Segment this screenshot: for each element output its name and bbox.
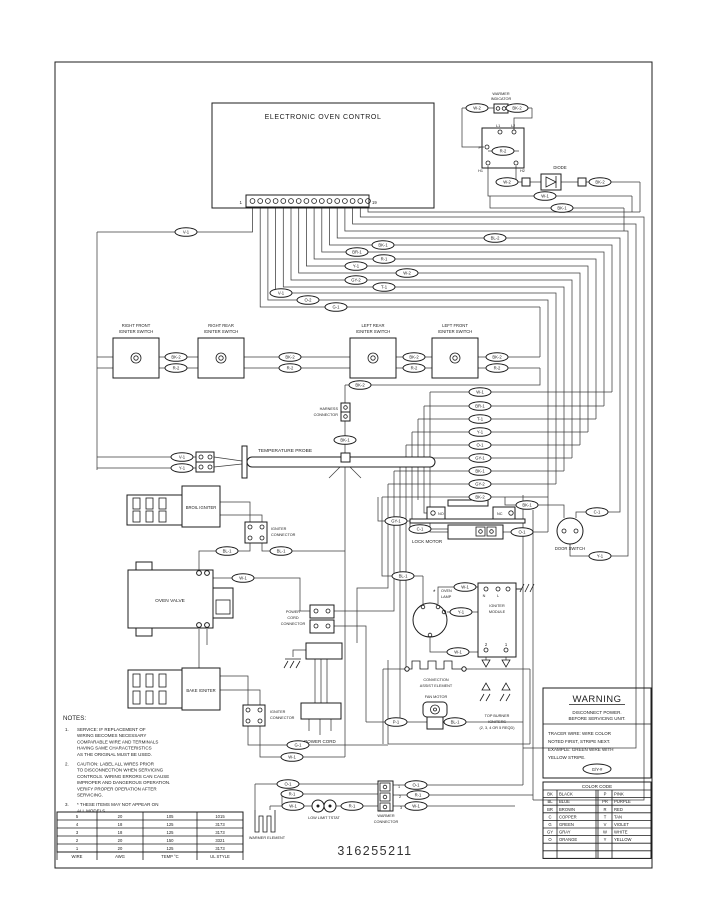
- svg-text:ASSIST ELEMENT: ASSIST ELEMENT: [420, 684, 453, 688]
- color-code-name: BLACK: [559, 792, 573, 797]
- wire-label-text: O-2: [305, 298, 313, 303]
- color-code-abbr: W: [603, 830, 607, 835]
- wire-label-text: BK-2: [285, 355, 295, 360]
- table-cell: 18: [118, 830, 123, 835]
- wire-label-text: BK-2: [355, 383, 365, 388]
- relay-p: P: [478, 146, 481, 150]
- svg-text:IGNITER SWITCH: IGNITER SWITCH: [438, 329, 473, 334]
- wire-label-text: BK-2: [492, 355, 502, 360]
- table-cell: 150: [167, 838, 175, 843]
- warning-title: WARNING: [572, 694, 621, 705]
- svg-text:NOTED FIRST, STRIPE NEXT.: NOTED FIRST, STRIPE NEXT.: [548, 739, 610, 744]
- wire-label-text: G-1: [333, 305, 341, 310]
- table-header-cell: WIRE: [72, 854, 83, 859]
- temperature-probe-label: TEMPERATURE PROBE: [258, 448, 312, 454]
- wire-label-text: W-1: [412, 804, 420, 809]
- svg-text:MODULE: MODULE: [489, 610, 506, 614]
- wire: [306, 207, 588, 432]
- color-code-name: YELLOW: [614, 837, 632, 842]
- wire-label-text: GY-2: [351, 278, 361, 283]
- svg-text:CORD: CORD: [287, 616, 298, 620]
- warmer-element-label: WARMER ELEMENT: [249, 836, 286, 840]
- wire: [276, 207, 556, 484]
- wire-label-text: GY-1: [391, 519, 401, 524]
- wire-label-text: P-1: [393, 720, 400, 725]
- wire-label-text: W-2: [403, 271, 411, 276]
- note-number: 3.: [65, 802, 69, 807]
- color-code-abbr: BK: [547, 792, 553, 797]
- note-line: SERVICING.: [77, 793, 103, 798]
- wire-label-text: BL-2: [491, 236, 501, 241]
- wire-label-text: W-1: [288, 755, 296, 760]
- tracer-line: TRACER WIRE: WIRE COLOR: [548, 731, 612, 736]
- table-cell: 125: [167, 822, 175, 827]
- color-code-abbr: G: [548, 822, 551, 827]
- note-line: VERIFY PROPER OPERATION AFTER: [77, 786, 157, 791]
- wire-label-text: Y-1: [458, 610, 465, 615]
- warmer-pin-2: 2: [399, 795, 401, 799]
- svg-text:CONNECTOR: CONNECTOR: [271, 533, 296, 537]
- color-code-abbr: PR: [602, 799, 608, 804]
- wire-label-text: W-2: [503, 180, 511, 185]
- wire-label-text: R-2: [494, 366, 501, 371]
- svg-text:IGNITER SWITCH: IGNITER SWITCH: [356, 329, 391, 334]
- svg-text:INDICATOR: INDICATOR: [491, 97, 512, 101]
- svg-text:(2, 3, 4 OR 5 REQD): (2, 3, 4 OR 5 REQD): [479, 726, 515, 730]
- svg-text:CONNECTOR: CONNECTOR: [281, 622, 306, 626]
- relay-l1: L1: [496, 124, 500, 128]
- igniter-switch-label: RIGHT FRONT: [122, 323, 151, 328]
- lock-nc-label: NC: [497, 512, 503, 516]
- ground-icon: [516, 584, 534, 592]
- color-code-name: WHITE: [614, 830, 628, 835]
- wire-label-text: GY-2: [475, 482, 485, 487]
- igniter-switch-box: [350, 338, 396, 378]
- warmer-pin-1: 1: [398, 785, 400, 789]
- svg-text:IGNITER SWITCH: IGNITER SWITCH: [204, 329, 239, 334]
- wire-label-text: C-1: [417, 527, 424, 532]
- table-cell: 1015: [215, 814, 225, 819]
- wire: [220, 676, 248, 705]
- wire-label-text: R-1: [289, 792, 296, 797]
- wire-label-text: Y-1: [597, 554, 604, 559]
- wire-label-text: Y-1: [353, 264, 360, 269]
- oven-lamp: * OVEN LAMP: [413, 589, 452, 637]
- wire-label-text: T-1: [381, 285, 388, 290]
- color-code-name: PINK: [614, 792, 624, 797]
- oven-valve-label: OVEN VALVE: [155, 598, 185, 604]
- wire-label-text: W-1: [461, 585, 469, 590]
- wire: [220, 502, 250, 522]
- note-line: COMPARABLE WIRE AND TERMINALS: [77, 739, 158, 744]
- relay-l2: L2: [511, 124, 515, 128]
- color-code-abbr: P: [604, 792, 607, 797]
- wire-label-text: R-1: [415, 793, 422, 798]
- table-cell: 4: [76, 822, 79, 827]
- svg-text:CONNECTOR: CONNECTOR: [314, 413, 339, 417]
- door-switch-label: DOOR SWITCH: [555, 546, 585, 551]
- spark-gap-icon: [500, 660, 510, 701]
- igniter-module-label: IGNITER: [489, 604, 505, 608]
- top-burner-label: TOP BURNER: [485, 714, 510, 718]
- door-switch: DOOR SWITCH: [555, 518, 585, 551]
- table-cell: 20: [118, 846, 123, 851]
- note-line: CAUTION: LABEL ALL WIRES PRIOR: [77, 762, 155, 767]
- color-code-name: BLUE: [559, 799, 570, 804]
- low-limit-label: LOW LIMIT TSTAT: [308, 816, 340, 820]
- color-code-name: VIOLET: [614, 822, 629, 827]
- oven-lamp-label: OVEN: [441, 589, 452, 593]
- relay-h1: H1: [478, 169, 483, 173]
- note-number: 2.: [65, 762, 69, 767]
- igniter-switch-box: [113, 338, 159, 378]
- harness-connector-label: HARNESS: [320, 407, 339, 411]
- svg-text:IGNITERS: IGNITERS: [488, 720, 506, 724]
- table-cell: 20: [118, 838, 123, 843]
- wire: [260, 207, 540, 307]
- wire-label-text: BL-1: [277, 549, 287, 554]
- svg-text:CONNECTOR: CONNECTOR: [374, 820, 399, 824]
- wire-label-text: BR-1: [475, 404, 485, 409]
- warning-line: DISCONNECT POWER.: [572, 710, 621, 715]
- note-line: * THESE ITEMS MAY NOT APPEAR ON: [77, 802, 158, 807]
- wire-label-text: R-2: [500, 149, 507, 154]
- wire-label-text: W-1: [454, 650, 462, 655]
- color-code-abbr: V: [604, 822, 607, 827]
- igniter-connector-label2: IGNITER: [270, 710, 286, 714]
- wire-label-text: V-1: [278, 291, 285, 296]
- wire-label-text: Y-1: [477, 430, 484, 435]
- diode-symbol: [541, 174, 561, 190]
- warmer-element-symbol: [255, 810, 275, 832]
- igniter-connector-label: IGNITER: [271, 527, 287, 531]
- notes-title: NOTES:: [63, 715, 86, 722]
- broil-igniter: BROIL IGNITER IGNITER CONNECTOR: [127, 486, 296, 543]
- note-line: TO DISCONNECTION WHEN SERVICING: [77, 768, 164, 773]
- color-code-name: ORANGE: [559, 837, 577, 842]
- wire-label-text: R-2: [287, 366, 294, 371]
- part-number: 316255211: [337, 844, 412, 858]
- igniter-connector-broil: [245, 522, 267, 543]
- table-cell: 3173: [215, 822, 225, 827]
- color-code-abbr: O: [548, 837, 552, 842]
- wire-label-text: BK-2: [409, 355, 419, 360]
- color-code-table: COLOR CODEBKBLACKPPINKBLBLUEPRPURPLEBRBR…: [543, 782, 651, 858]
- broil-igniter-label: BROIL IGNITER: [186, 505, 217, 510]
- terminal-19-label: 19: [372, 200, 377, 205]
- svg-text:BEFORE SERVICING UNIT.: BEFORE SERVICING UNIT.: [569, 716, 626, 721]
- fan-motor-label: FAN MOTOR: [425, 695, 448, 699]
- temperature-probe: TEMPERATURE PROBE: [196, 446, 435, 478]
- note-line: SERVICE: IF REPLACEMENT OF: [77, 727, 146, 732]
- svg-text:CONNECTOR: CONNECTOR: [270, 716, 295, 720]
- wire-label-text: BK-2: [595, 180, 605, 185]
- wire-label-text: BK-1: [378, 243, 388, 248]
- wire-label-text: G-1: [295, 743, 303, 748]
- diode-label: DIODE: [553, 165, 566, 170]
- wire: [214, 457, 242, 461]
- module-l: L: [497, 594, 499, 598]
- lock-no-label: NO: [438, 512, 444, 516]
- wire-label-text: O-1: [519, 530, 527, 535]
- table-cell: 20: [118, 814, 123, 819]
- convection-assist-element: CONVECTION ASSIST ELEMENT: [405, 661, 466, 688]
- convection-label: CONVECTION: [423, 678, 449, 682]
- wire-label-text: BL-1: [399, 574, 409, 579]
- table-cell: 5: [76, 814, 79, 819]
- wire-label-text: V-1: [179, 455, 186, 460]
- wire: [334, 471, 394, 611]
- harness-connector: HARNESS CONNECTOR: [314, 403, 350, 462]
- wire-label-text: BK-2: [171, 355, 181, 360]
- lock-motor-label: LOCK MOTOR: [412, 539, 443, 544]
- wire-label-text: W-1: [541, 194, 549, 199]
- power-cord-plug: [301, 703, 341, 719]
- notes: NOTES:1.SERVICE: IF REPLACEMENT OFWIRING…: [63, 715, 170, 813]
- igniter-switch-box: [432, 338, 478, 378]
- wire-label-text: O-1: [413, 783, 421, 788]
- wire-label-text: W-1: [476, 390, 484, 395]
- wire-label-text: O-1: [477, 443, 485, 448]
- table-header-cell: AWG: [115, 854, 125, 859]
- warmer-connector-label: WARMER: [377, 814, 394, 818]
- color-code-abbr: R: [603, 807, 606, 812]
- color-code-abbr: C: [548, 814, 551, 819]
- oven-valve: OVEN VALVE: [128, 562, 233, 636]
- wire-label-text: BL-1: [451, 720, 461, 725]
- spark-gap-icon: [480, 660, 490, 701]
- color-code-name: PURPLE: [614, 799, 631, 804]
- color-code-name: RED: [614, 807, 623, 812]
- wire-label-text: R-1: [381, 257, 388, 262]
- table-header-cell: UL STYLE: [210, 854, 230, 859]
- igniter-module: N L IGNITER MODULE 2 1: [478, 583, 534, 701]
- ground-icon: [284, 659, 301, 668]
- wire: [357, 484, 388, 643]
- table-cell: 125: [167, 846, 175, 851]
- color-code-abbr: BR: [547, 807, 553, 812]
- power-cord-label: POWER CORD: [304, 739, 336, 744]
- relay-h2: H2: [520, 169, 525, 173]
- table-cell: 125: [167, 830, 175, 835]
- wire-label-text: R-1: [349, 804, 356, 809]
- color-code-name: TAN: [614, 814, 622, 819]
- table-cell: 105: [167, 814, 175, 819]
- wire: [220, 515, 262, 522]
- igniter-switch-label: LEFT REAR: [362, 323, 385, 328]
- color-code-name: BROWN: [559, 807, 575, 812]
- color-code-name: GRAY: [559, 830, 571, 835]
- wire-label-text: BK-1: [475, 469, 485, 474]
- power-cord-assembly: POWER CORD CONNECTOR POWER CORD: [281, 605, 342, 744]
- warmer-circuit: WARMER ELEMENT LOW LIMIT TSTAT 1 2 3 WAR…: [249, 781, 402, 840]
- wire-label-text: Y-1: [179, 466, 186, 471]
- table-cell: 2: [76, 838, 79, 843]
- module-n: N: [483, 594, 486, 598]
- wire: [220, 690, 260, 705]
- wire-label-text: BR-1: [352, 250, 362, 255]
- wire: [293, 650, 306, 657]
- wire: [214, 464, 242, 467]
- igniter-switch-label: LEFT FRONT: [442, 323, 468, 328]
- color-code-abbr: T: [604, 814, 607, 819]
- wire-label-text: R-2: [411, 366, 418, 371]
- warmer-indicator-label: WARMER: [492, 92, 509, 96]
- wire-label-text: BK-2: [475, 495, 485, 500]
- svg-text:LAMP: LAMP: [441, 595, 452, 599]
- bake-igniter-label: BAKE IGNITER: [186, 688, 215, 693]
- wire-label-text: BK-1: [340, 438, 350, 443]
- wiring-diagram-sheet: ELECTRONIC OVEN CONTROL 1 19 WARMER INDI…: [0, 0, 708, 916]
- warmer-indicator-circuit: WARMER INDICATOR P L1 L2 H1 H2 DIODE: [478, 92, 586, 190]
- wire-label-text: BK-2: [512, 106, 522, 111]
- note-line: IMPROPER AND DANGEROUS OPERATION.: [77, 780, 170, 785]
- wire-gauge-table: 5201051015418125317331812531732201503321…: [57, 812, 243, 860]
- wire-label-text: W-2: [473, 106, 481, 111]
- bake-igniter: BAKE IGNITER IGNITER CONNECTOR: [128, 668, 295, 726]
- color-code-abbr: BL: [547, 799, 553, 804]
- electronic-oven-control: ELECTRONIC OVEN CONTROL 1 19: [212, 103, 434, 208]
- wire-label-text: V-1: [183, 230, 190, 235]
- wire-label-text: T-1: [477, 417, 484, 422]
- igniter-switch-box: [198, 338, 244, 378]
- table-header-cell: TEMP °C: [161, 854, 178, 859]
- wire-label-text: W-1: [239, 576, 247, 581]
- wire-label-text: R-2: [173, 366, 180, 371]
- color-code-title: COLOR CODE: [582, 784, 612, 789]
- warning-box: WARNING DISCONNECT POWER. BEFORE SERVICI…: [543, 688, 651, 778]
- wire-label-text: BK-1: [557, 206, 567, 211]
- svg-text:IGNITER SWITCH: IGNITER SWITCH: [119, 329, 154, 334]
- table-cell: 1: [76, 846, 79, 851]
- lock-motor: NO NC LOCK MOTOR: [410, 500, 525, 544]
- note-line: WIRING BECOMES NECESSARY: [77, 733, 146, 738]
- tracer-example-label: G/Y-#: [592, 767, 603, 772]
- wire-label-text: GY-1: [475, 456, 485, 461]
- wire-label-text: BL-1: [223, 549, 233, 554]
- igniter-switch-label: RIGHT REAR: [208, 323, 234, 328]
- lamp-star: *: [433, 589, 436, 596]
- wire-label-text: O-1: [285, 782, 293, 787]
- table-cell: 3173: [215, 846, 225, 851]
- eoc-title: ELECTRONIC OVEN CONTROL: [265, 114, 382, 121]
- wire: [462, 108, 484, 147]
- svg-text:YELLOW STRIPE.: YELLOW STRIPE.: [548, 755, 586, 760]
- table-cell: 18: [118, 822, 123, 827]
- table-cell: 3173: [215, 830, 225, 835]
- igniter-connector-bake: [243, 705, 265, 726]
- color-code-name: COPPER: [559, 814, 577, 819]
- table-cell: 3321: [215, 838, 225, 843]
- note-line: ALL MODELS.: [77, 808, 106, 813]
- svg-text:EXAMPLE: GREEN WIRE WITH: EXAMPLE: GREEN WIRE WITH: [548, 747, 614, 752]
- color-code-name: GREEN: [559, 822, 574, 827]
- power-cord-connector-label: POWER: [286, 610, 301, 614]
- color-code-abbr: Y: [604, 837, 607, 842]
- wiring-diagram: ELECTRONIC OVEN CONTROL 1 19 WARMER INDI…: [0, 0, 708, 916]
- note-number: 1.: [65, 727, 69, 732]
- fan-motor: FAN MOTOR: [423, 695, 448, 729]
- note-line: AS THE ORIGINAL MUST BE USED.: [77, 752, 152, 757]
- note-line: HAVING SAME CHARACTERISTICS: [77, 746, 152, 751]
- color-code-abbr: GY: [547, 830, 553, 835]
- wire-label-text: W-1: [289, 804, 297, 809]
- note-line: CONTROLS. WIRING ERRORS CAN CAUSE: [77, 774, 169, 779]
- wire: [97, 207, 253, 232]
- warmer-pin-3: 3: [400, 806, 402, 810]
- wire-label-text: BK-1: [522, 503, 532, 508]
- wire-label-text: C-1: [594, 510, 601, 515]
- table-cell: 3: [76, 830, 79, 835]
